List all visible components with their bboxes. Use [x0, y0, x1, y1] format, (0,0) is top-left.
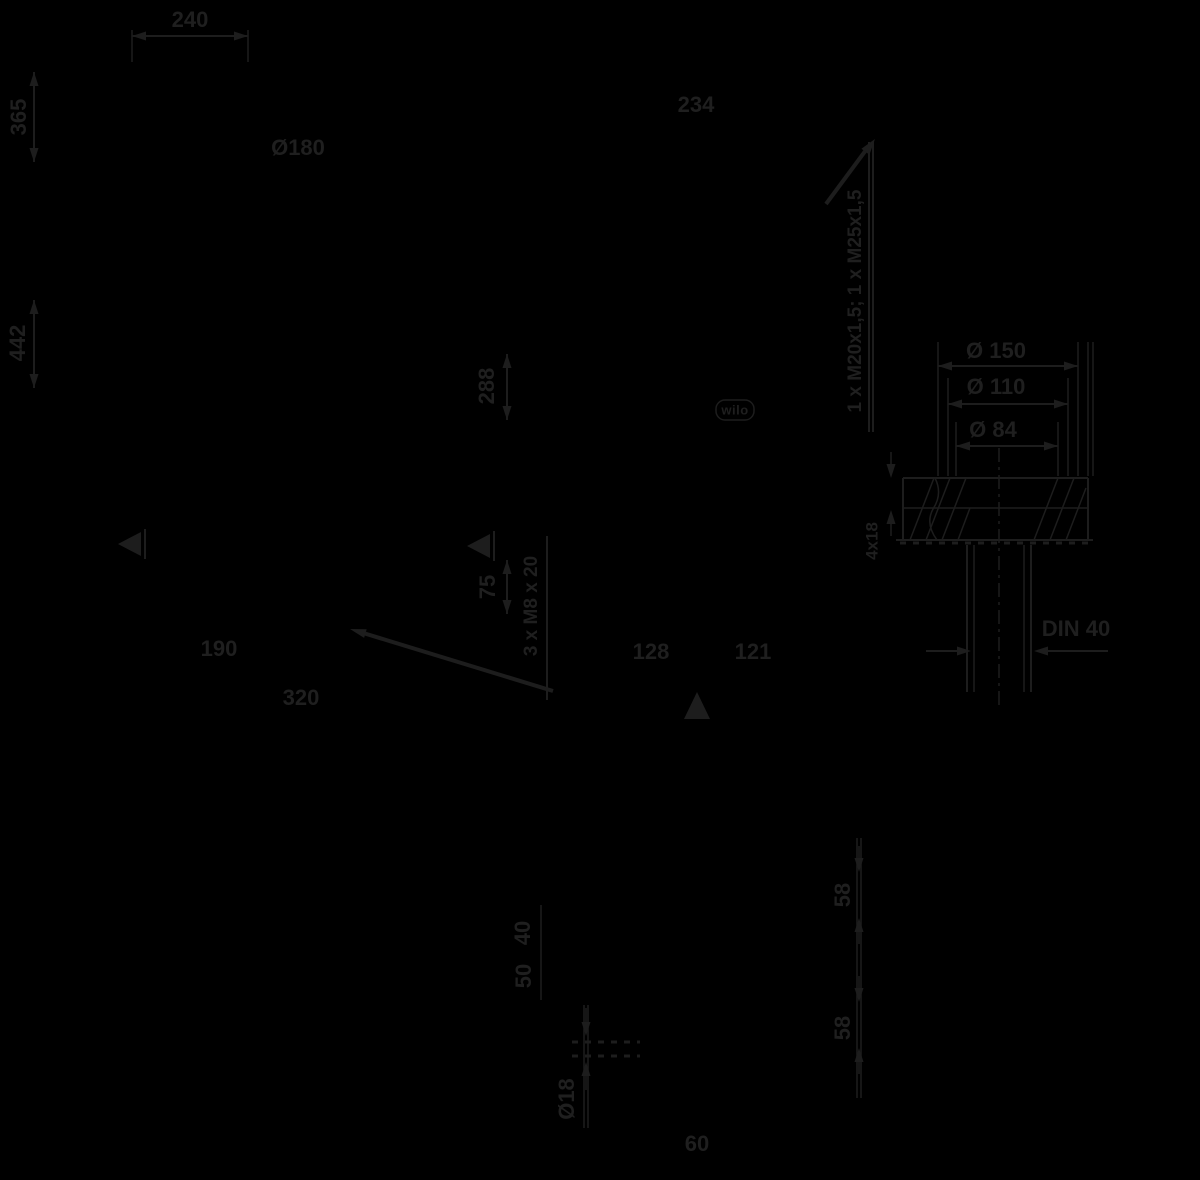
dim-label-240: 240: [172, 7, 209, 32]
arrowhead: [1054, 400, 1068, 409]
dim-label-365: 365: [6, 99, 31, 136]
arrowhead: [503, 406, 512, 420]
flange-holes-label: 4x18: [862, 522, 881, 560]
flange-detail-view: Ø 150 Ø 110 Ø 84 4x1: [862, 338, 1110, 706]
pump-dimension-drawing: 240 Ø180 365 442 234 288 wilo 1 x M20x1,…: [0, 0, 1200, 1180]
dim-label-75: 75: [475, 575, 500, 599]
arrowhead: [956, 442, 970, 451]
arrowhead: [887, 510, 896, 524]
technical-drawing-canvas: 240 Ø180 365 442 234 288 wilo 1 x M20x1,…: [0, 0, 1200, 1180]
arrowhead: [948, 400, 962, 409]
thread-spec-label: 3 x M8 x 20: [521, 556, 542, 656]
datum-triangle: [118, 532, 141, 556]
arrowhead: [957, 647, 971, 656]
flange-id-label: Ø 84: [969, 417, 1017, 442]
datum-triangle: [467, 534, 490, 558]
arrowhead: [234, 32, 248, 41]
arrowhead: [855, 858, 864, 872]
dim-label-288: 288: [474, 368, 499, 405]
arrowhead: [582, 1062, 591, 1076]
front-view-dimensions: 240 Ø180 365 442: [5, 7, 325, 388]
dim-label-40: 40: [510, 921, 535, 945]
dim-label-442: 442: [5, 325, 30, 362]
datum-triangle: [684, 692, 710, 719]
arrowhead: [855, 988, 864, 1002]
arrowhead: [1044, 442, 1058, 451]
arrowhead: [132, 32, 146, 41]
arrowhead: [1034, 647, 1048, 656]
arrowhead: [887, 464, 896, 478]
arrowhead: [1064, 362, 1078, 371]
arrowhead: [582, 1022, 591, 1036]
cable-gland-note: 1 x M20x1,5; 1 x M25x1,5: [845, 189, 866, 412]
dim-label-60: 60: [685, 1131, 709, 1156]
dim-label-motor-diameter: Ø180: [271, 135, 325, 160]
flange-standard-label: DIN 40: [1042, 616, 1110, 641]
dim-label-128: 128: [633, 639, 670, 664]
arrowhead: [30, 374, 39, 388]
arrowhead: [503, 600, 512, 614]
dim-label-320: 320: [283, 685, 320, 710]
foot-detail-center: 40 50 Ø18 60: [510, 905, 709, 1156]
dim-label-50: 50: [511, 964, 536, 988]
section-hatching: [910, 478, 1086, 540]
arrowhead: [30, 300, 39, 314]
dim-label-121: 121: [735, 639, 772, 664]
foot-detail-right: 58 58: [830, 838, 864, 1098]
dim-label-58-lower: 58: [830, 1016, 855, 1040]
flange-bolt-circle-label: Ø 110: [967, 374, 1026, 399]
base-plate-view: 190 320 128 121 3 x M8 x 20 75: [118, 529, 771, 719]
arrowhead: [30, 72, 39, 86]
side-view-dimensions: 234 288 wilo 1 x M20x1,5; 1 x M25x1,5: [474, 92, 875, 432]
arrowhead: [855, 1048, 864, 1062]
flange-od-label: Ø 150: [966, 338, 1026, 363]
dim-label-190: 190: [201, 636, 238, 661]
brand-logo: wilo: [720, 402, 748, 417]
foot-hole-label: Ø18: [554, 1078, 579, 1120]
dim-label-58-upper: 58: [830, 883, 855, 907]
arrowhead: [938, 362, 952, 371]
dim-label-234: 234: [678, 92, 715, 117]
arrowhead: [855, 918, 864, 932]
arrowhead: [30, 148, 39, 162]
arrowhead: [503, 354, 512, 368]
arrowhead: [350, 629, 367, 638]
arrowhead: [503, 560, 512, 574]
